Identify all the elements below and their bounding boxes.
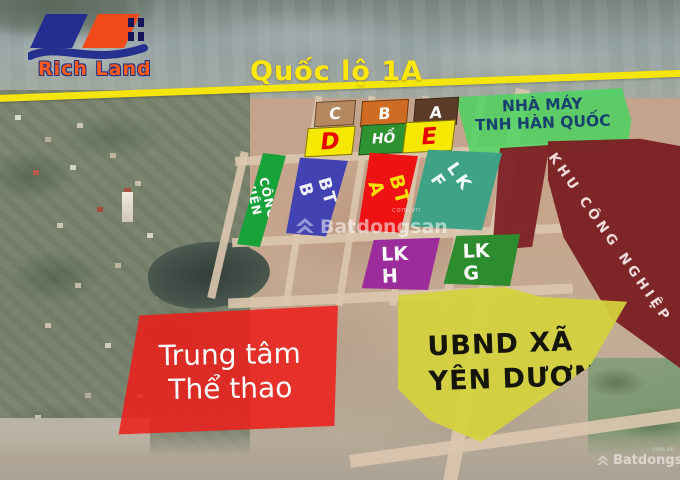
aerial-photo-house-dots (15, 115, 21, 120)
batdongsan-chevron-icon (596, 454, 610, 468)
plot-block-e-label: E (420, 123, 439, 150)
watermark-domain: com.vn (652, 446, 674, 453)
plot-block-lk-g-label: LK G (462, 239, 506, 284)
plot-block-b-label: B (378, 103, 392, 123)
plot-block-lk-f-label: LK F (426, 159, 486, 221)
plot-block-d-label: D (319, 128, 341, 155)
zone-sports-center-label: Trung tâmThể thao (113, 336, 346, 407)
richland-logo: Rich Land (10, 2, 170, 86)
plot-block-a-label: A (429, 102, 443, 122)
plot-block-e: E (402, 120, 456, 154)
plot-block-lake: HỒ (358, 123, 409, 156)
batdongsan-chevron-icon (294, 216, 316, 238)
plot-block-c-label: C (328, 104, 341, 124)
watermark-domain: com.vn (392, 206, 421, 214)
aerial-photo-church-tower (122, 192, 133, 222)
logo-window (128, 18, 134, 27)
plot-block-lk-h-label: LK H (381, 242, 426, 287)
plot-block-lake-label: HỒ (371, 130, 397, 147)
highway-1a-label: Quốc lộ 1A (250, 56, 423, 87)
plot-block-c: C (314, 100, 356, 127)
watermark-center: com.vn Batdongsan (294, 210, 424, 246)
brand-name: Rich Land (38, 58, 152, 80)
zone-sports-center: Trung tâmThể thao (114, 300, 346, 440)
project-masterplan-image: Quốc lộ 1A NHÀ MÁYTNH HÀN QUỐC KHU CÔNG … (0, 0, 680, 480)
watermark-name: Batdongsan (613, 453, 680, 468)
zone-korean-factory-label: NHÀ MÁYTNH HÀN QUỐC (449, 93, 635, 136)
plot-block-d: D (304, 126, 356, 158)
logo-window (138, 18, 144, 27)
watermark-name: Batdongsan (320, 216, 448, 238)
watermark-corner: com.vn Batdongsan (596, 446, 680, 472)
